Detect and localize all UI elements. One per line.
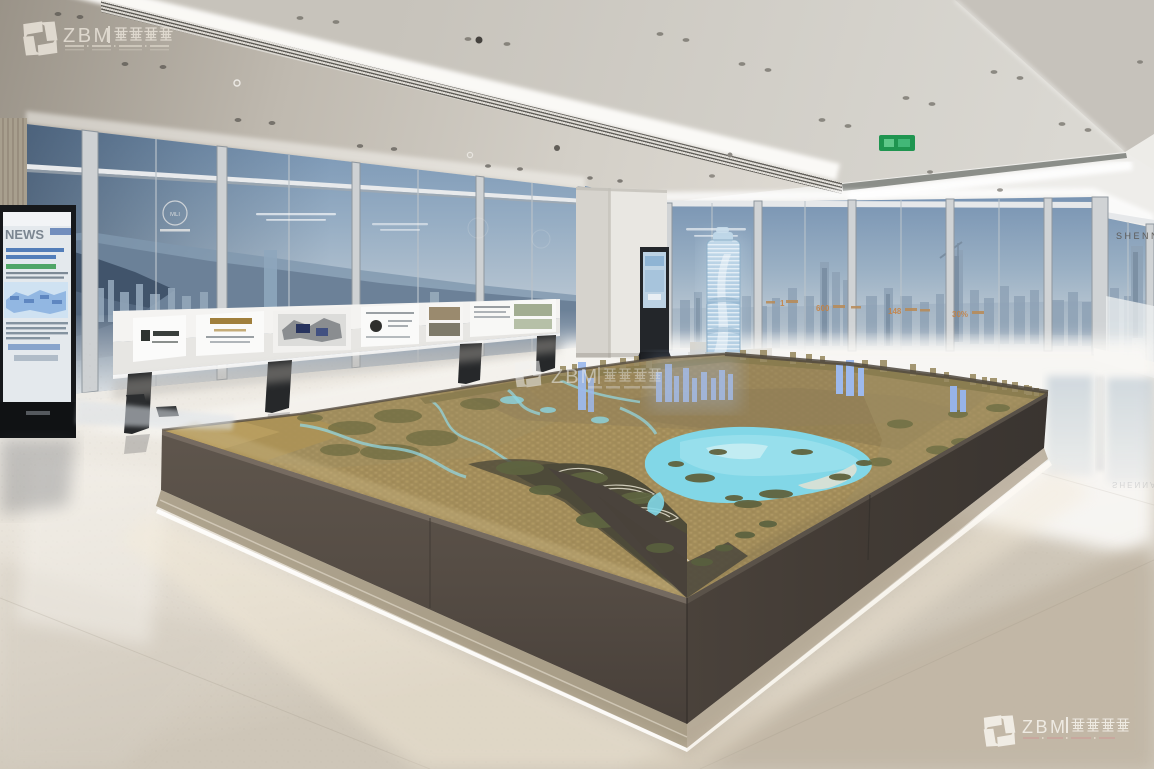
svg-text:MLI: MLI [170, 212, 180, 218]
svg-text:SHENNA: SHENNA [1112, 480, 1154, 489]
svg-text:148: 148 [888, 307, 902, 316]
svg-text:ZBM: ZBM [1022, 717, 1068, 737]
svg-text:1: 1 [780, 299, 785, 308]
svg-text:600: 600 [816, 304, 830, 313]
svg-text:SHENNA: SHENNA [1116, 231, 1154, 241]
svg-text:ZBM: ZBM [551, 366, 599, 388]
svg-text:ZBM: ZBM [63, 25, 113, 47]
svg-text:NEWS: NEWS [5, 227, 44, 242]
svg-text:30%: 30% [952, 310, 968, 319]
